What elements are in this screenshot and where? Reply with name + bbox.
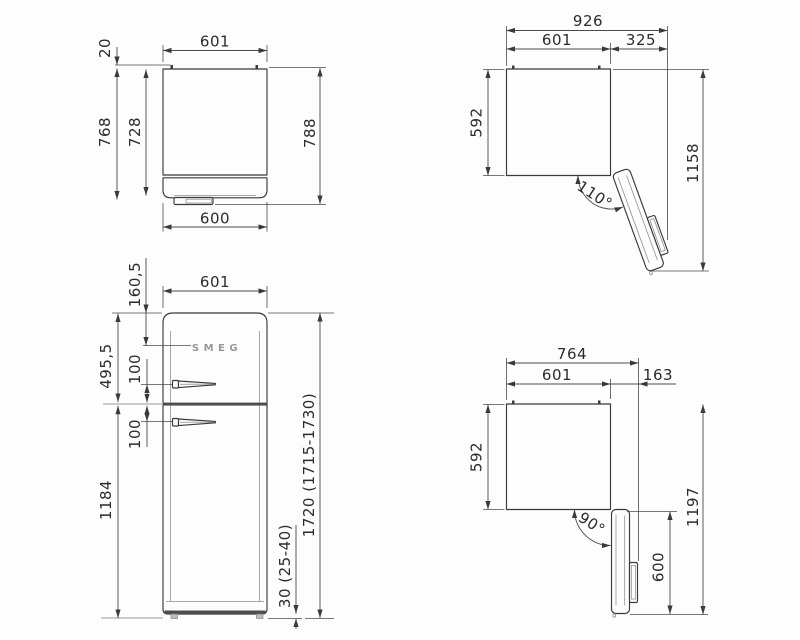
- foot: [257, 614, 264, 619]
- rear-spacer: [256, 65, 259, 69]
- dim-handle-gap-upper: 100: [126, 354, 144, 384]
- dim-logo-offset: 160,5: [126, 262, 144, 307]
- dim-width-top: 601: [200, 33, 230, 51]
- view-open-110: 110° 926 601 325 592 1158: [468, 12, 710, 275]
- dim-front-width: 601: [200, 273, 230, 291]
- dim-group-rear-gap: 20: [96, 38, 117, 65]
- dim-group-body-601: 601: [507, 366, 611, 399]
- dim-group-lower-door: 1184: [97, 406, 118, 618]
- dim-group-feet: 30 (25-40): [268, 524, 302, 629]
- dim-group-handle-gap-lower: 100: [126, 406, 172, 449]
- dim-feet: 30 (25-40): [276, 524, 294, 608]
- cabinet-outline: [507, 69, 611, 176]
- dim-total-depth: 788: [301, 118, 319, 148]
- door-handle: [174, 198, 213, 205]
- dim-group-depth-728: 728: [126, 70, 146, 196]
- brand-logo: SMEG: [192, 343, 242, 354]
- dim-door-swing: 325: [626, 31, 656, 49]
- dim-total-width: 764: [557, 345, 587, 363]
- dim-total-width: 926: [573, 12, 603, 30]
- dim-group-bottom-width: 600: [163, 202, 267, 232]
- dim-total-reach: 1158: [684, 143, 702, 183]
- cabinet-outline: [163, 69, 267, 175]
- spec-drawing-page: 601 20 768 728 788 600: [0, 0, 800, 640]
- dim-body-width: 601: [542, 31, 572, 49]
- dim-group-door-163: 163: [611, 366, 677, 384]
- dim-depth: 592: [468, 442, 486, 472]
- dim-group-front-width: 601: [163, 273, 267, 308]
- dim-group-reach-1197: 1197: [630, 405, 708, 615]
- dim-group-depth-592: 592: [468, 70, 505, 176]
- door-split: [163, 403, 267, 406]
- door-handle: [630, 563, 638, 603]
- dim-depth: 592: [468, 107, 486, 137]
- dim-door-swing: 163: [643, 366, 673, 384]
- dim-group-logo-offset: 160,5: [126, 258, 191, 346]
- dim-width-bottom: 600: [200, 210, 230, 228]
- dim-angle-90: 90°: [575, 508, 608, 538]
- dim-group-depth-592: 592: [468, 405, 505, 510]
- plinth-band: [165, 611, 266, 615]
- lower-door-handle: [173, 419, 216, 427]
- dim-group-upper-door: 495,5: [97, 314, 118, 403]
- dim-height: 1720 (1715-1730): [300, 393, 318, 537]
- rear-spacer: [598, 66, 601, 70]
- dim-depth-to-door: 768: [96, 117, 114, 147]
- dim-lower-door: 1184: [97, 480, 115, 520]
- fridge-front-outline: [163, 313, 267, 614]
- dim-group-body-601: 601: [507, 31, 611, 64]
- refrigerator-dimension-drawing: 601 20 768 728 788 600: [0, 0, 800, 640]
- dim-body-depth: 728: [126, 117, 144, 147]
- open-door-90: [612, 510, 638, 618]
- dim-handle-gap-lower: 100: [126, 419, 144, 449]
- dim-angle-110: 110°: [574, 177, 616, 213]
- dim-group-depth-768: 768: [96, 69, 117, 200]
- dim-group-handle-gap-upper: 100: [126, 354, 172, 403]
- cabinet-outline: [507, 404, 611, 510]
- dim-rear-gap: 20: [96, 38, 114, 58]
- view-front: SMEG 601 160,5: [97, 258, 334, 629]
- foot: [171, 614, 178, 619]
- dim-group-door-325: 325: [611, 31, 668, 49]
- rear-spacer: [171, 65, 174, 69]
- dim-group-depth-788: 788: [215, 68, 326, 205]
- dim-group-height: 1720 (1715-1730): [300, 313, 334, 619]
- view-open-90: 90° 764 601 163 592 600: [468, 345, 709, 617]
- dim-upper-door: 495,5: [97, 343, 115, 388]
- door-outline: [163, 178, 267, 198]
- dim-body-width: 601: [542, 366, 572, 384]
- open-door-110: [612, 165, 673, 275]
- view-top-closed: 601 20 768 728 788 600: [96, 33, 326, 232]
- dim-door-length: 600: [650, 552, 668, 582]
- rear-spacer: [512, 401, 515, 405]
- dim-total-reach: 1197: [684, 487, 702, 527]
- upper-door-handle: [173, 381, 216, 389]
- rear-spacer: [598, 401, 601, 405]
- dim-group-top-width: 601: [163, 33, 267, 63]
- rear-spacer: [512, 66, 515, 70]
